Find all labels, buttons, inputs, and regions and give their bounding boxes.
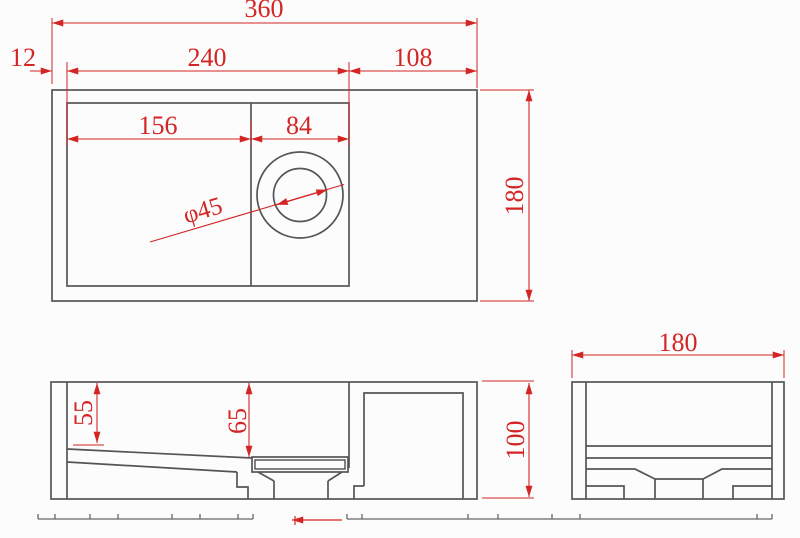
drain-funnel-left <box>258 472 274 481</box>
drain-outer-circle <box>257 152 343 238</box>
drain-flange-inner <box>255 460 345 469</box>
dim-label-overall-depth-side: 180 <box>659 328 698 357</box>
dim-label-right-section: 108 <box>394 43 433 72</box>
front-view <box>51 382 477 499</box>
dimension-lines <box>30 23 784 497</box>
sink-dimension-drawing: 360 12 240 108 156 84 φ45 180 55 65 100 … <box>0 0 800 538</box>
basin-floor-upper-slope <box>67 449 252 458</box>
front-floor-step-left <box>237 472 248 499</box>
basin-floor-lower-slope <box>67 462 237 472</box>
side-view-outline <box>572 382 784 499</box>
dim-label-overall-height: 100 <box>501 421 530 460</box>
dim-label-left-basin: 156 <box>139 111 178 140</box>
dimension-labels: 360 12 240 108 156 84 φ45 180 55 65 100 … <box>10 0 698 460</box>
top-view <box>52 90 477 301</box>
dim-label-drain-depth: 65 <box>223 408 252 434</box>
drain-inner-circle <box>274 169 327 222</box>
dim-label-basin-opening: 240 <box>188 43 227 72</box>
dim-label-left-depth: 55 <box>69 400 98 426</box>
side-foot-right <box>733 486 772 499</box>
side-foot-left <box>586 486 624 499</box>
side-view <box>572 382 784 499</box>
drain-funnel-right <box>328 472 342 481</box>
dim-label-overall-width: 360 <box>245 0 284 23</box>
bottom-dimension-row <box>38 514 772 525</box>
technical-drawing-page: 360 12 240 108 156 84 φ45 180 55 65 100 … <box>0 0 800 538</box>
dim-label-drain-diameter: φ45 <box>180 192 225 229</box>
dim-label-drain-section: 84 <box>286 111 312 140</box>
dim-label-overall-depth-top: 180 <box>500 177 529 216</box>
side-drain-funnel <box>586 469 772 479</box>
front-recess-step <box>354 486 364 499</box>
front-right-recess <box>364 393 463 499</box>
top-view-outer-rect <box>52 90 477 301</box>
dim-label-left-offset: 12 <box>10 43 36 72</box>
front-view-outline <box>51 382 477 499</box>
